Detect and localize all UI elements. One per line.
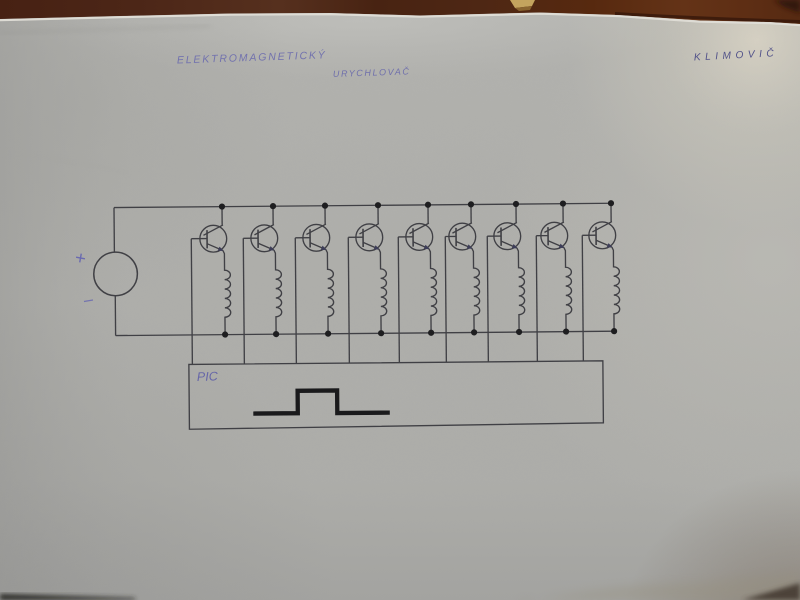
svg-text:PIC: PIC [197, 369, 219, 384]
